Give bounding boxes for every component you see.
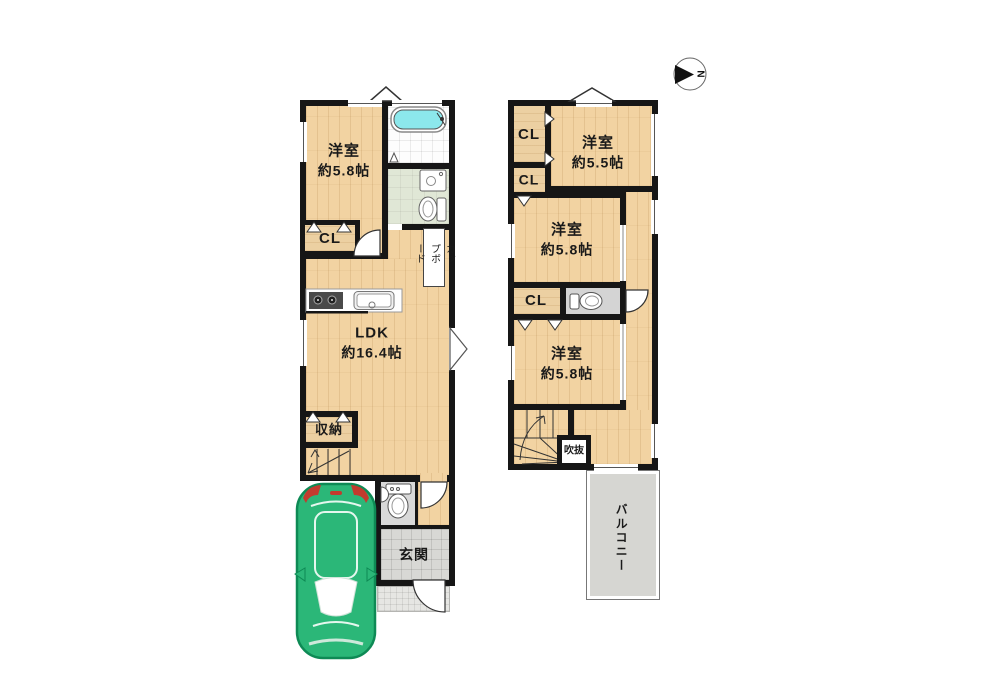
floor1-stairs-floor: [306, 449, 352, 475]
floor2-toilet-room-floor: [566, 288, 620, 314]
label-closet2-2f: CL: [519, 171, 540, 190]
label-closet3-2f: CL: [525, 291, 547, 311]
label-closet1-2f: CL: [518, 125, 540, 145]
floor1-cupboard: カップボード: [423, 228, 445, 287]
compass-north-label: N: [694, 70, 705, 77]
floor1-washroom-floor: [388, 169, 449, 224]
floor1-toilet-room-floor: [381, 482, 415, 525]
floor1-hallway-opening: [420, 473, 447, 482]
label-balcony: バルコニー: [613, 503, 629, 573]
floor1-bathroom-floor: [388, 106, 449, 163]
label-western58b-2f: 洋室 約5.8帖: [541, 344, 593, 383]
compass: N: [674, 58, 706, 90]
floor1-porch: [377, 586, 450, 612]
label-storage: 収納: [315, 421, 343, 439]
floor1-hallway-floor: [418, 482, 449, 525]
label-western-room-1f: 洋室 約5.8帖: [318, 141, 370, 180]
car: [295, 484, 377, 658]
gable-mark-floor1: [370, 87, 402, 101]
label-ldk: LDK 約16.4帖: [341, 323, 402, 362]
label-void: 吹抜: [564, 444, 584, 458]
label-entrance: 玄関: [399, 546, 429, 565]
label-closet-1f: CL: [319, 229, 341, 249]
label-western58a-2f: 洋室 約5.8帖: [541, 220, 593, 259]
floorplan-canvas: カップボード: [0, 0, 1000, 700]
label-western55-2f: 洋室 約5.5帖: [572, 133, 624, 172]
cupboard-label: カップボード: [412, 243, 457, 272]
